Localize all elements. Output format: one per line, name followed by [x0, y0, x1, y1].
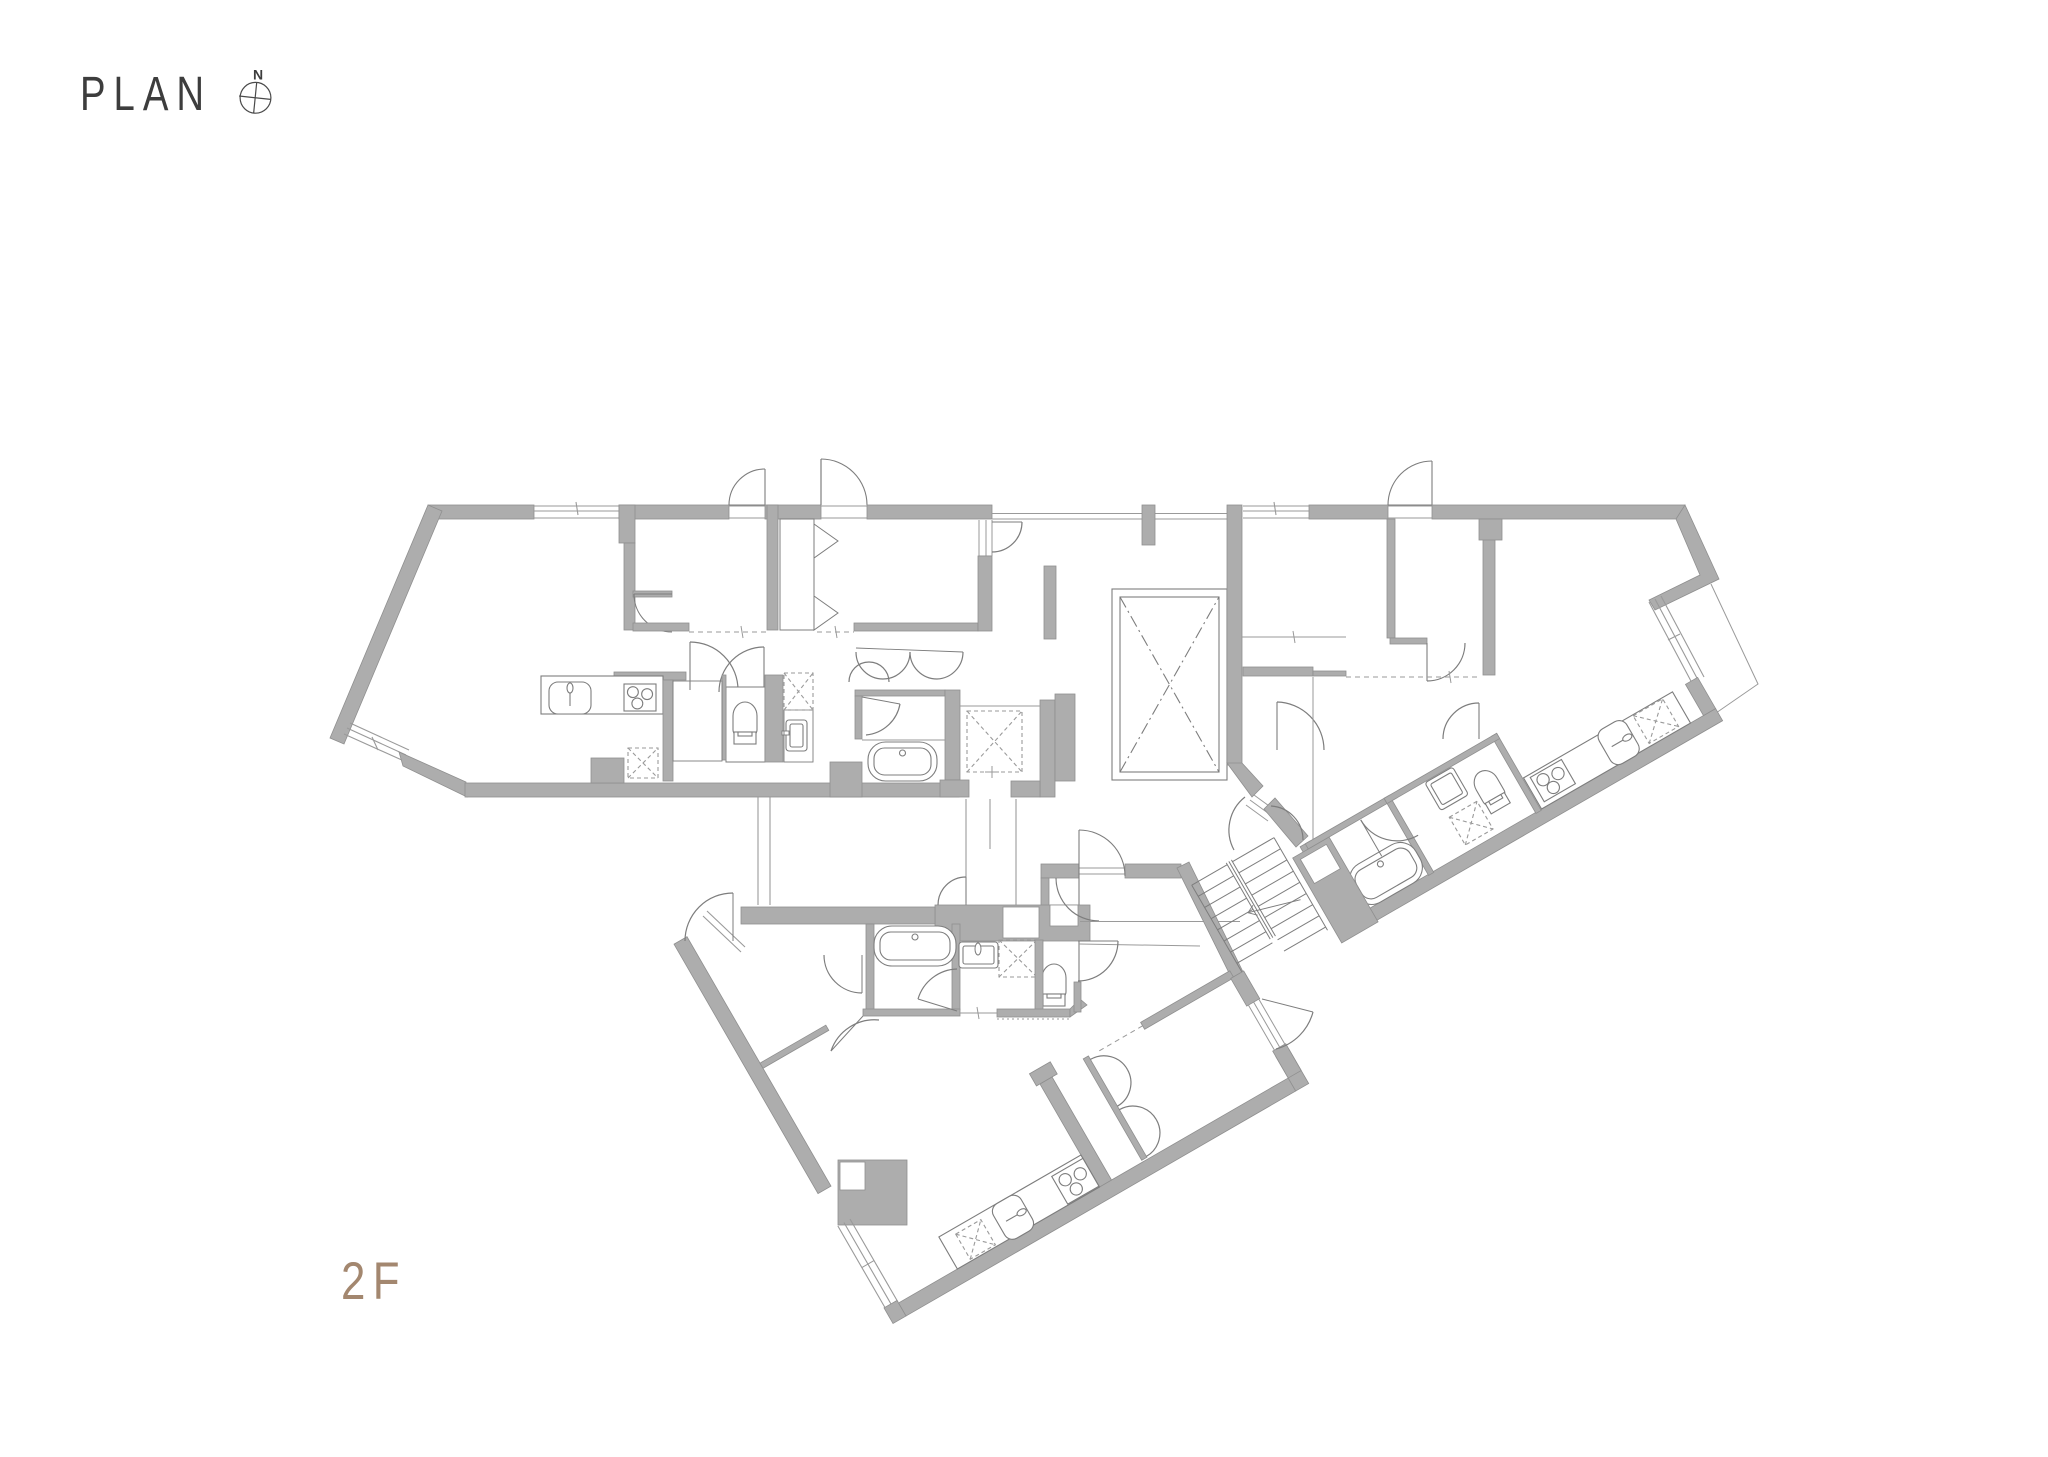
- svg-text:2F: 2F: [341, 1252, 407, 1311]
- svg-text:PLAN: PLAN: [80, 68, 212, 121]
- svg-text:N: N: [253, 67, 263, 83]
